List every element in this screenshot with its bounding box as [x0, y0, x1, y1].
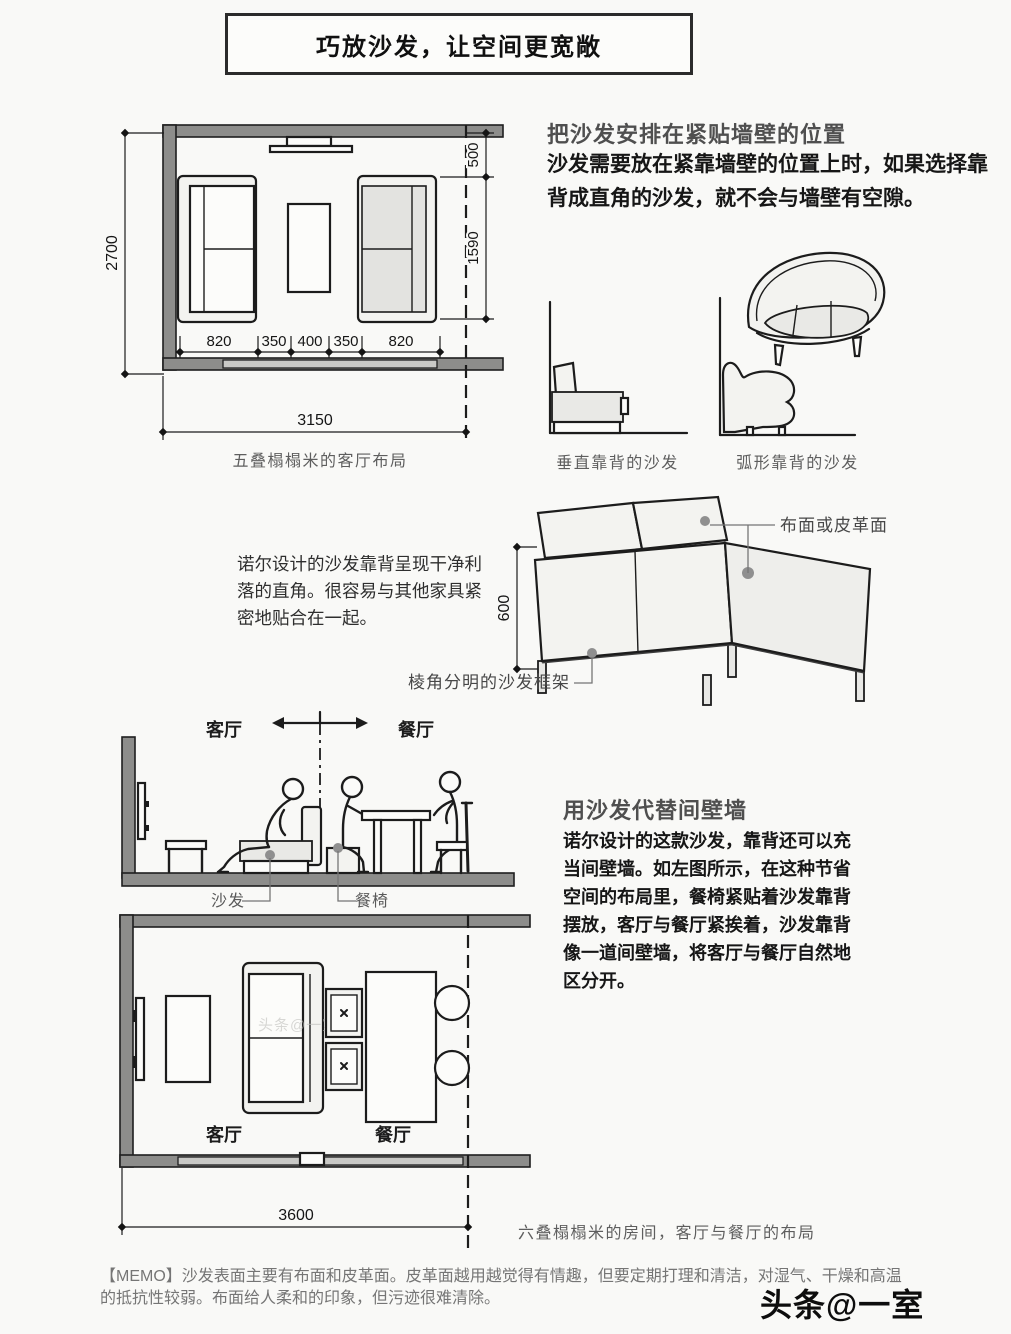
wall-left — [120, 915, 133, 1167]
section-label-living: 客厅 — [206, 719, 242, 740]
dining-chair-1 — [326, 989, 362, 1037]
section-label-dining: 餐厅 — [397, 719, 434, 740]
wall-left — [163, 125, 176, 370]
round-chair-1 — [435, 986, 469, 1020]
title-box: 巧放沙发，让空间更宽敞 — [225, 13, 693, 75]
wall-section-heading: 把沙发安排在紧贴墙壁的位置 — [547, 117, 846, 149]
sofa-armrest — [621, 398, 628, 414]
person-across-table — [431, 772, 460, 872]
sofa-back-face — [535, 543, 732, 661]
page-title: 巧放沙发，让空间更宽敞 — [316, 27, 602, 62]
caption-curved-back: 弧形靠背的沙发 — [725, 449, 870, 473]
tv-on-wall — [138, 783, 149, 839]
wall-section-body: 沙发需要放在紧靠墙壁的位置上时，如果选择靠背成直角的沙发，就不会与墙壁有空隙。 — [547, 148, 991, 216]
dim-offset-top-text: 500 — [465, 142, 482, 167]
wall-top — [163, 125, 503, 137]
sofa-leg — [853, 337, 861, 356]
divider-body: 诺尔设计的这款沙发，靠背还可以充当间壁墙。如左图所示，在这种节省空间的布局里，餐… — [563, 827, 857, 995]
bottom-plan-caption: 六叠榻榻米的房间，客厅与餐厅的布局 — [518, 1219, 848, 1243]
back-cushion-right — [633, 497, 727, 549]
dim-room-height: 2700 — [104, 129, 164, 378]
floor — [122, 873, 514, 886]
sofa-base — [244, 861, 308, 873]
tv-top-view — [270, 137, 352, 152]
dim-sofa-span-text: 1590 — [465, 231, 482, 264]
coffee-table — [288, 204, 330, 292]
watermark: 头条@一室 — [760, 1280, 924, 1326]
section-view-divider: 客厅 餐厅 — [100, 705, 540, 915]
sofa-seat — [552, 392, 623, 422]
dim-seg5: 820 — [388, 333, 413, 350]
label-sofa: 沙发 — [211, 892, 245, 910]
label-surface: 布面或皮革面 — [780, 516, 888, 535]
sofa-wall-illustrations — [535, 235, 895, 460]
tv-board — [270, 146, 352, 152]
top-floorplan: 820 350 400 350 820 2700 500 1590 — [100, 100, 540, 472]
back-cushion-left — [538, 503, 642, 558]
dim-width-text: 3600 — [278, 1207, 314, 1224]
top-plan-caption: 五叠榻榻米的客厅布局 — [165, 447, 475, 471]
caption-straight-back: 垂直靠背的沙发 — [545, 449, 690, 473]
sofa-leg — [856, 671, 864, 701]
plan-label-dining: 餐厅 — [374, 1124, 411, 1145]
dim-room-width-text: 3150 — [297, 412, 333, 429]
sofa-side-face — [725, 543, 870, 671]
dim-room-width: 3150 — [159, 376, 470, 440]
sofa-leg — [728, 643, 736, 677]
sofa-leg — [703, 675, 711, 705]
plan-label-living: 客厅 — [206, 1124, 242, 1145]
dim-sofa-height: 600 — [496, 543, 540, 673]
dim-room-height-text: 2700 — [104, 235, 121, 271]
sofa-right-top-view — [358, 176, 436, 322]
curved-sofa-profile — [723, 363, 794, 432]
sofa-detail-drawing: 600 布面或皮革面 棱角分明的沙发框架 — [380, 485, 895, 715]
round-chair-2 — [435, 1051, 469, 1085]
dining-table-section — [362, 811, 430, 873]
sofa-seat — [240, 841, 312, 861]
straight-back-sofa-side-view — [550, 302, 687, 433]
door-handle — [300, 1153, 324, 1165]
curved-sofa-perspective — [748, 253, 884, 365]
dim-room-width-bottom: 3600 — [118, 1168, 472, 1235]
sofa-left-top-view — [178, 176, 256, 322]
dim-seg2: 350 — [261, 333, 286, 350]
scanned-book-page: 巧放沙发，让空间更宽敞 — [0, 0, 1011, 1334]
sofa-plan-view: 头条@一室 — [243, 963, 338, 1113]
sliding-door — [223, 360, 437, 368]
sofa-leg — [779, 427, 785, 435]
dim-seg3: 400 — [297, 333, 322, 350]
dim-segments: 820 350 400 350 820 — [176, 333, 444, 358]
dim-seg4: 350 — [333, 333, 358, 350]
side-table — [166, 841, 206, 872]
sofa-base — [554, 422, 620, 433]
dim-seg1: 820 — [206, 333, 231, 350]
divider-heading: 用沙发代替间壁墙 — [563, 793, 747, 825]
label-chair: 餐椅 — [355, 892, 389, 910]
dining-table — [366, 972, 436, 1122]
sofa-back-cushion — [554, 363, 576, 395]
wall-left — [122, 737, 135, 878]
sofa-leg — [775, 345, 783, 365]
bottom-floorplan: 头条@一室 客厅 餐厅 3600 — [100, 910, 540, 1260]
dim-sofa-height-text: 600 — [496, 595, 513, 622]
tv-plan-view — [133, 998, 144, 1080]
far-chair — [437, 803, 472, 873]
sofa-leg — [747, 427, 753, 435]
dining-chair-2 — [326, 1043, 362, 1090]
tv-stand — [166, 996, 210, 1082]
tv-body — [287, 137, 331, 146]
label-frame: 棱角分明的沙发框架 — [408, 673, 570, 692]
